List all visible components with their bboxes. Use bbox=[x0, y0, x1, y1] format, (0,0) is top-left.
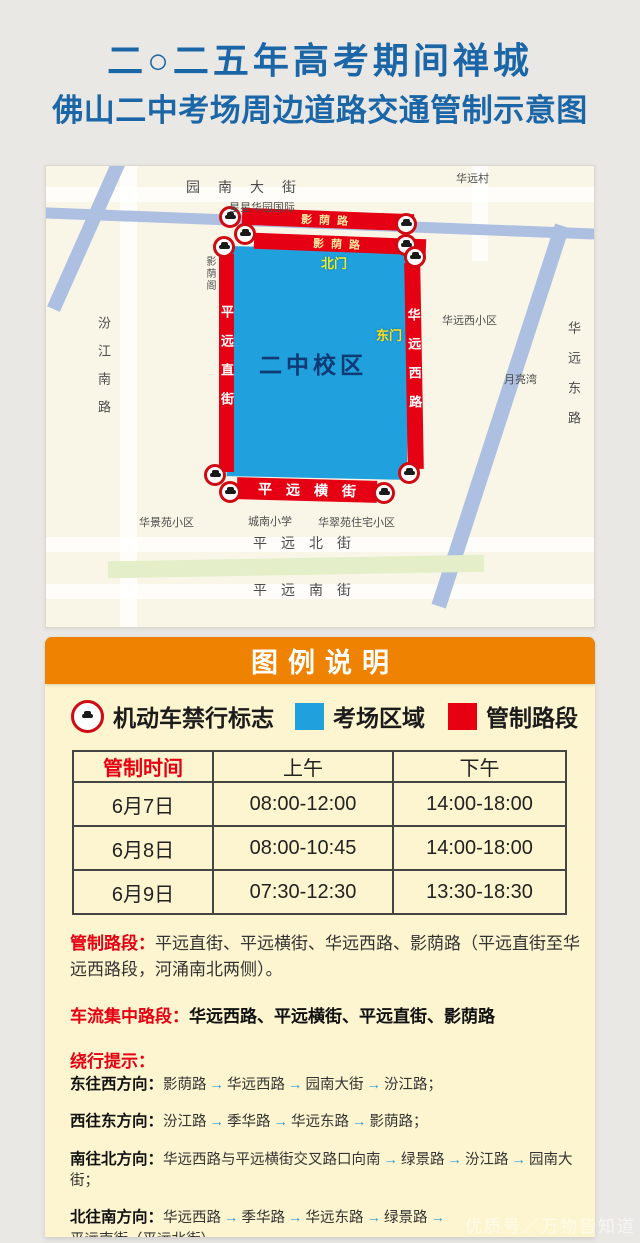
park-strip bbox=[108, 555, 484, 579]
no-entry-icon bbox=[404, 246, 426, 268]
no-entry-icon bbox=[373, 482, 395, 504]
detour-south-to-north: 南往北方向：华远西路与平远横街交叉路口向南→绿景路→汾江路→园南大街； bbox=[45, 1149, 595, 1192]
detour-route-step: 华远西路 bbox=[163, 1210, 221, 1226]
car-glyph bbox=[379, 491, 390, 495]
arrow-icon: → bbox=[210, 1077, 225, 1093]
arrow-icon: → bbox=[288, 1210, 303, 1226]
place-label-huacuiyuan: 华翠苑住宅小区 bbox=[318, 514, 395, 530]
table-cell-pm: 14:00-18:00 bbox=[393, 782, 566, 826]
exam-area-swatch bbox=[295, 703, 324, 730]
car-glyph bbox=[82, 714, 93, 718]
title-line2: 佛山二中考场周边道路交通管制示意图 bbox=[0, 91, 640, 131]
detour-hint-label: 绕行提示： bbox=[70, 1052, 155, 1071]
poster-title: 二○二五年高考期间禅城 佛山二中考场周边道路交通管制示意图 bbox=[0, 38, 640, 131]
arrow-icon: → bbox=[224, 1210, 239, 1226]
legend-item-label: 机动车禁行标志 bbox=[113, 699, 274, 733]
detour-route-step: 影荫路 bbox=[163, 1077, 207, 1093]
detour-route-step: 绿景路 bbox=[401, 1152, 445, 1168]
table-cell-date: 6月9日 bbox=[73, 870, 213, 914]
detour-east-to-west: 东往西方向：影荫路→华远西路→园南大街→汾江路； bbox=[45, 1074, 595, 1096]
place-label-yingyinge: 影荫阁 bbox=[202, 256, 217, 292]
yingyin-road-south-label: 影荫路 bbox=[313, 235, 368, 253]
campus-name-label: 二中校区 bbox=[259, 346, 367, 380]
legend-item-label: 管制路段 bbox=[486, 699, 578, 733]
controlled-roads-label: 管制路段： bbox=[70, 934, 155, 953]
restricted-bar-pingyuan-hengjie: 平远横街 bbox=[237, 477, 378, 503]
arrow-icon: → bbox=[288, 1077, 303, 1093]
detour-direction-label: 北往南方向： bbox=[70, 1209, 163, 1226]
watermark: 优质号／万物皆知道 bbox=[465, 1212, 636, 1237]
detour-route-step: 影荫路； bbox=[370, 1114, 428, 1130]
restricted-bar-huayuan-xilu: 华远西路 bbox=[404, 263, 424, 469]
arrow-icon: → bbox=[352, 1114, 367, 1130]
no-entry-icon bbox=[234, 223, 256, 245]
detour-route-step: 汾江路 bbox=[163, 1114, 207, 1130]
place-label-xingxing: 星星华园国际 bbox=[229, 199, 295, 215]
car-glyph bbox=[410, 255, 421, 259]
table-cell-pm: 13:30-18:30 bbox=[393, 870, 566, 914]
no-entry-icon bbox=[219, 481, 241, 503]
control-times-table: 管制时间 上午 下午 6月7日 08:00-12:00 14:00-18:00 … bbox=[72, 750, 567, 915]
no-entry-icon bbox=[395, 213, 417, 235]
car-glyph bbox=[401, 222, 412, 226]
table-header-cell: 下午 bbox=[393, 751, 566, 782]
car-glyph bbox=[225, 490, 236, 494]
no-entry-icon bbox=[213, 236, 235, 258]
detour-route-step: 汾江路； bbox=[384, 1077, 442, 1093]
arrow-icon: → bbox=[274, 1114, 289, 1130]
detour-route-step: 华远东路 bbox=[306, 1210, 364, 1226]
street-label-fenjiangnan: 汾江南路 bbox=[94, 316, 113, 428]
detour-direction-label: 西往东方向： bbox=[70, 1113, 163, 1130]
arrow-icon: → bbox=[210, 1114, 225, 1130]
table-cell-pm: 14:00-18:00 bbox=[393, 826, 566, 870]
table-row: 6月7日 08:00-12:00 14:00-18:00 bbox=[73, 782, 566, 826]
detour-route-step: 园南大街 bbox=[306, 1077, 364, 1093]
detour-route-step: 汾江路 bbox=[465, 1152, 509, 1168]
legend-header-label: 图例说明 bbox=[241, 641, 399, 680]
legend-panel: 机动车禁行标志 考场区域 管制路段 管制时间 上午 下午 6月7日 08:00-… bbox=[45, 684, 595, 1237]
traffic-control-map: 影荫路 影荫路 平远直街 华远西路 平远横街 北门 东门 二中校区 园南大街 华… bbox=[45, 165, 595, 628]
east-gate-label: 东门 bbox=[376, 325, 402, 344]
legend-item-label: 考场区域 bbox=[333, 699, 425, 733]
detour-hint-heading: 绕行提示： bbox=[45, 1050, 595, 1074]
detour-route-step: 平远南街（平远北街） bbox=[70, 1232, 215, 1237]
legend-items-row: 机动车禁行标志 考场区域 管制路段 bbox=[45, 684, 595, 733]
detour-route: 影荫路→华远西路→园南大街→汾江路； bbox=[163, 1077, 442, 1093]
place-label-huayuancun: 华远村 bbox=[456, 170, 489, 186]
restricted-bar-pingyuan-zhijie: 平远直街 bbox=[219, 254, 234, 472]
no-entry-icon bbox=[398, 462, 420, 484]
congestion-roads-text: 华远西路、平远横街、平远直街、影荫路 bbox=[189, 1007, 495, 1026]
detour-route-step: 绿景路 bbox=[384, 1210, 428, 1226]
pingyuan-zhijie-label: 平远直街 bbox=[217, 305, 236, 421]
congestion-roads-label: 车流集中路段： bbox=[70, 1007, 189, 1026]
huayuan-xilu-label: 华远西路 bbox=[403, 308, 424, 424]
table-row: 6月8日 08:00-10:45 14:00-18:00 bbox=[73, 826, 566, 870]
table-header-cell: 上午 bbox=[213, 751, 393, 782]
detour-route-step: 季华路 bbox=[227, 1114, 271, 1130]
congestion-roads-note: 车流集中路段：华远西路、平远横街、平远直街、影荫路 bbox=[45, 1004, 595, 1030]
detour-route-step: 华远东路 bbox=[291, 1114, 349, 1130]
street-label-huayuandong: 华远东路 bbox=[564, 321, 583, 441]
detour-direction-label: 南往北方向： bbox=[70, 1151, 163, 1168]
car-glyph bbox=[240, 232, 251, 236]
table-cell-am: 08:00-10:45 bbox=[213, 826, 393, 870]
table-header-row: 管制时间 上午 下午 bbox=[73, 751, 566, 782]
detour-west-to-east: 西往东方向：汾江路→季华路→华远东路→影荫路； bbox=[45, 1111, 595, 1133]
table-cell-date: 6月8日 bbox=[73, 826, 213, 870]
table-cell-am: 07:30-12:30 bbox=[213, 870, 393, 914]
place-label-chengnan-school: 城南小学 bbox=[248, 513, 292, 529]
arrow-icon: → bbox=[512, 1152, 527, 1168]
car-glyph bbox=[225, 215, 236, 219]
street-label-pingyuanbei: 平远北街 bbox=[253, 533, 365, 553]
north-gate-label: 北门 bbox=[321, 253, 347, 272]
arrow-icon: → bbox=[448, 1152, 463, 1168]
yingyin-road-north-label: 影荫路 bbox=[301, 210, 356, 228]
detour-direction-label: 东往西方向： bbox=[70, 1076, 163, 1093]
arrow-icon: → bbox=[384, 1152, 399, 1168]
street-label-pingyuannan: 平远南街 bbox=[253, 580, 365, 600]
table-cell-date: 6月7日 bbox=[73, 782, 213, 826]
title-line1: 二○二五年高考期间禅城 bbox=[0, 38, 640, 85]
controlled-roads-note: 管制路段：平远直街、平远横街、华远西路、影荫路（平远直街至华远西路段，河涌南北两… bbox=[45, 931, 595, 984]
road-left-vertical bbox=[120, 166, 137, 628]
restricted-road-swatch bbox=[448, 703, 477, 730]
car-glyph bbox=[210, 473, 221, 477]
car-glyph bbox=[219, 245, 230, 249]
street-label-yuannan: 园南大街 bbox=[186, 177, 314, 197]
place-label-huayuanxi-estate: 华远西小区 bbox=[442, 312, 497, 328]
detour-route: 汾江路→季华路→华远东路→影荫路； bbox=[163, 1114, 428, 1130]
detour-route-step: 季华路 bbox=[242, 1210, 286, 1226]
table-header-cell: 管制时间 bbox=[73, 751, 213, 782]
legend-header: 图例说明 bbox=[45, 637, 595, 684]
detour-route-step: 华远西路与平远横街交叉路口向南 bbox=[163, 1152, 381, 1168]
arrow-icon: → bbox=[431, 1210, 446, 1226]
car-glyph bbox=[404, 471, 415, 475]
table-row: 6月9日 07:30-12:30 13:30-18:30 bbox=[73, 870, 566, 914]
place-label-yueliangwan: 月亮湾 bbox=[504, 371, 537, 387]
detour-route-step: 华远西路 bbox=[227, 1077, 285, 1093]
pingyuan-hengjie-label: 平远横街 bbox=[244, 478, 370, 501]
table-cell-am: 08:00-12:00 bbox=[213, 782, 393, 826]
arrow-icon: → bbox=[367, 1077, 382, 1093]
place-label-huajingyuan: 华景苑小区 bbox=[139, 514, 194, 530]
no-entry-icon bbox=[71, 700, 104, 733]
arrow-icon: → bbox=[367, 1210, 382, 1226]
